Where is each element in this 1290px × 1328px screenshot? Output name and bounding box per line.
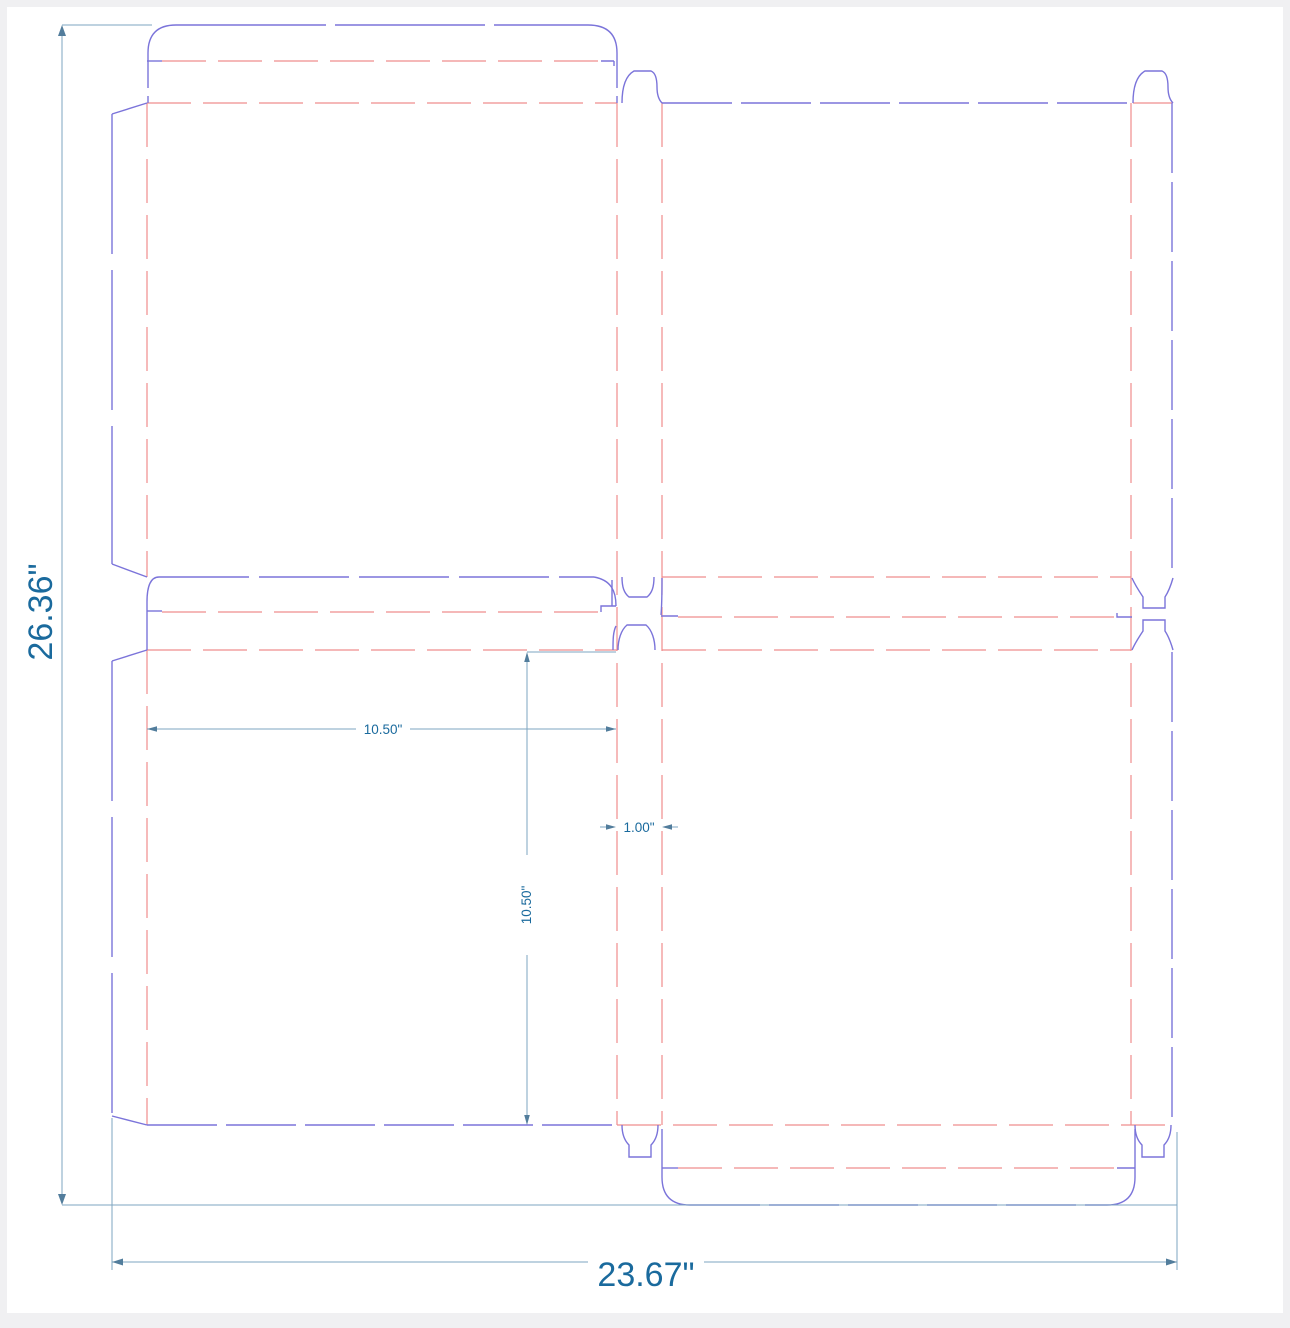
- dimension-label-gap-width: 1.00": [623, 820, 654, 835]
- dimension-label-overall-height: 26.36": [22, 563, 60, 660]
- dieline-drawing: 26.36" 23.67" 10.50" 10.50" 1.00": [0, 0, 1290, 1328]
- dimension-label-panel-height: 10.50": [519, 886, 534, 925]
- dimension-label-overall-width: 23.67": [597, 1256, 694, 1294]
- sheet-background: [0, 0, 1290, 1328]
- dieline-drawing-canvas: 26.36" 23.67" 10.50" 10.50" 1.00": [0, 0, 1290, 1328]
- dimension-label-panel-width: 10.50": [364, 722, 403, 737]
